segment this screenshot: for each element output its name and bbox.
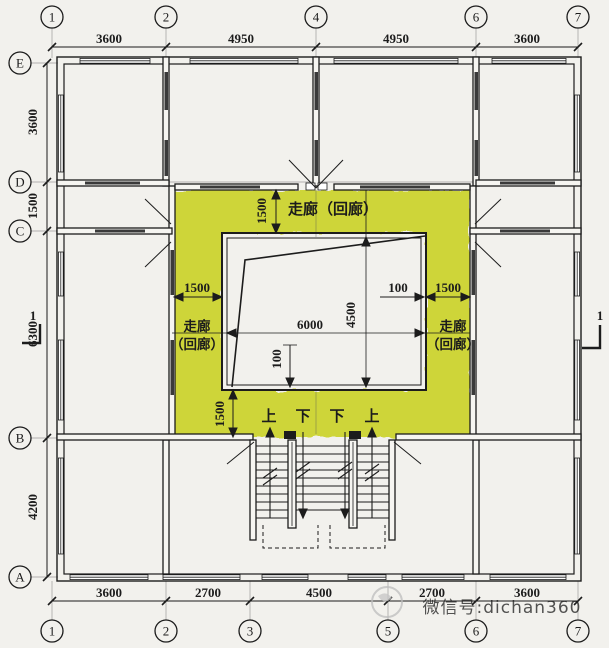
stair-jamb-block (349, 431, 361, 439)
section-mark-label-left: 1 (30, 308, 37, 323)
axis-bubble-top-1: 1 (49, 10, 56, 25)
dim-top-3: 4950 (383, 31, 409, 46)
dim-bottom-2: 2700 (195, 585, 221, 600)
dim-courtyard-width: 6000 (297, 317, 323, 332)
axis-bubble-left-C: C (16, 224, 25, 239)
stair-label-down-right: 下 (329, 407, 344, 425)
section-mark-label-right: 1 (597, 308, 604, 323)
floor-plan-drawing: 1 2 4 6 7 3600 4950 4950 3600 E D C B A … (0, 0, 609, 648)
stair-treads (256, 446, 389, 518)
labels: 1 2 4 6 7 3600 4950 4950 3600 E D C B A … (15, 10, 603, 639)
door-jamb (306, 183, 315, 190)
skewed-opening-line (232, 236, 425, 387)
dim-corridor-left-width: 1500 (184, 280, 210, 295)
axis-bubble-bottom-3: 3 (247, 624, 254, 639)
courtyard (222, 233, 426, 390)
window-row-top (80, 58, 566, 63)
stair-direction-arrows (263, 428, 379, 518)
dim-corridor-top-offset: 1500 (254, 198, 269, 224)
watermark: 微信号:dichan360 (372, 587, 582, 618)
dim-top-1: 3600 (96, 31, 122, 46)
dim-top-2: 4950 (228, 31, 254, 46)
dim-bottom-1: 3600 (96, 585, 122, 600)
dim-right-gap: 100 (388, 280, 408, 295)
dim-bottom-gap: 100 (269, 349, 284, 369)
window-col-right (575, 95, 580, 554)
axis-bubble-bottom-1: 1 (49, 624, 56, 639)
axis-bubble-top-2: 2 (163, 10, 170, 25)
dim-courtyard-height: 4500 (343, 302, 358, 328)
corridor-label-right-1: 走廊 (440, 318, 467, 335)
corridor-label-right-2: （回廊） (426, 336, 480, 353)
stairs (256, 428, 389, 548)
corridor-label-left-2: （回廊） (170, 336, 224, 353)
dim-left-3: 6300 (25, 321, 40, 347)
axis-bubble-bottom-2: 2 (163, 624, 170, 639)
corridor-label-left-1: 走廊 (184, 318, 211, 335)
dim-left-1: 3600 (25, 109, 40, 135)
stair-dashed-landing (263, 525, 385, 548)
dim-corridor-bottom-offset: 1500 (212, 401, 227, 427)
dim-left-4: 4200 (25, 494, 40, 520)
axis-bubble-bottom-5: 5 (385, 624, 392, 639)
axis-bubble-left-E: E (16, 56, 24, 71)
stair-label-up-right: 上 (364, 407, 379, 425)
watermark-logo-swirl (378, 593, 392, 601)
window-row-bottom (70, 575, 566, 580)
watermark-text: 微信号:dichan360 (422, 598, 581, 618)
floor-plan-page: 1 2 4 6 7 3600 4950 4950 3600 E D C B A … (0, 0, 609, 648)
dim-top-4: 3600 (514, 31, 540, 46)
stair-jamb-block (284, 431, 296, 439)
corridor-label-top: 走廊（回廊） (288, 200, 378, 218)
dim-corridor-right-width: 1500 (435, 280, 461, 295)
stair-label-up-left: 上 (261, 407, 276, 425)
axis-bubble-bottom-6: 6 (473, 624, 480, 639)
axis-bubble-top-7: 7 (575, 10, 582, 25)
window-col-left (58, 95, 63, 554)
axis-bubble-top-6: 6 (473, 10, 480, 25)
dim-bottom-3: 4500 (306, 585, 332, 600)
dim-left-2: 1500 (25, 193, 40, 219)
axis-bubble-bottom-7: 7 (575, 624, 582, 639)
axis-bubble-top-4: 4 (313, 10, 320, 25)
stair-label-down-left: 下 (295, 407, 310, 425)
axis-bubble-left-B: B (16, 431, 25, 446)
axis-bubble-left-A: A (15, 570, 25, 585)
axis-bubble-left-D: D (15, 175, 24, 190)
